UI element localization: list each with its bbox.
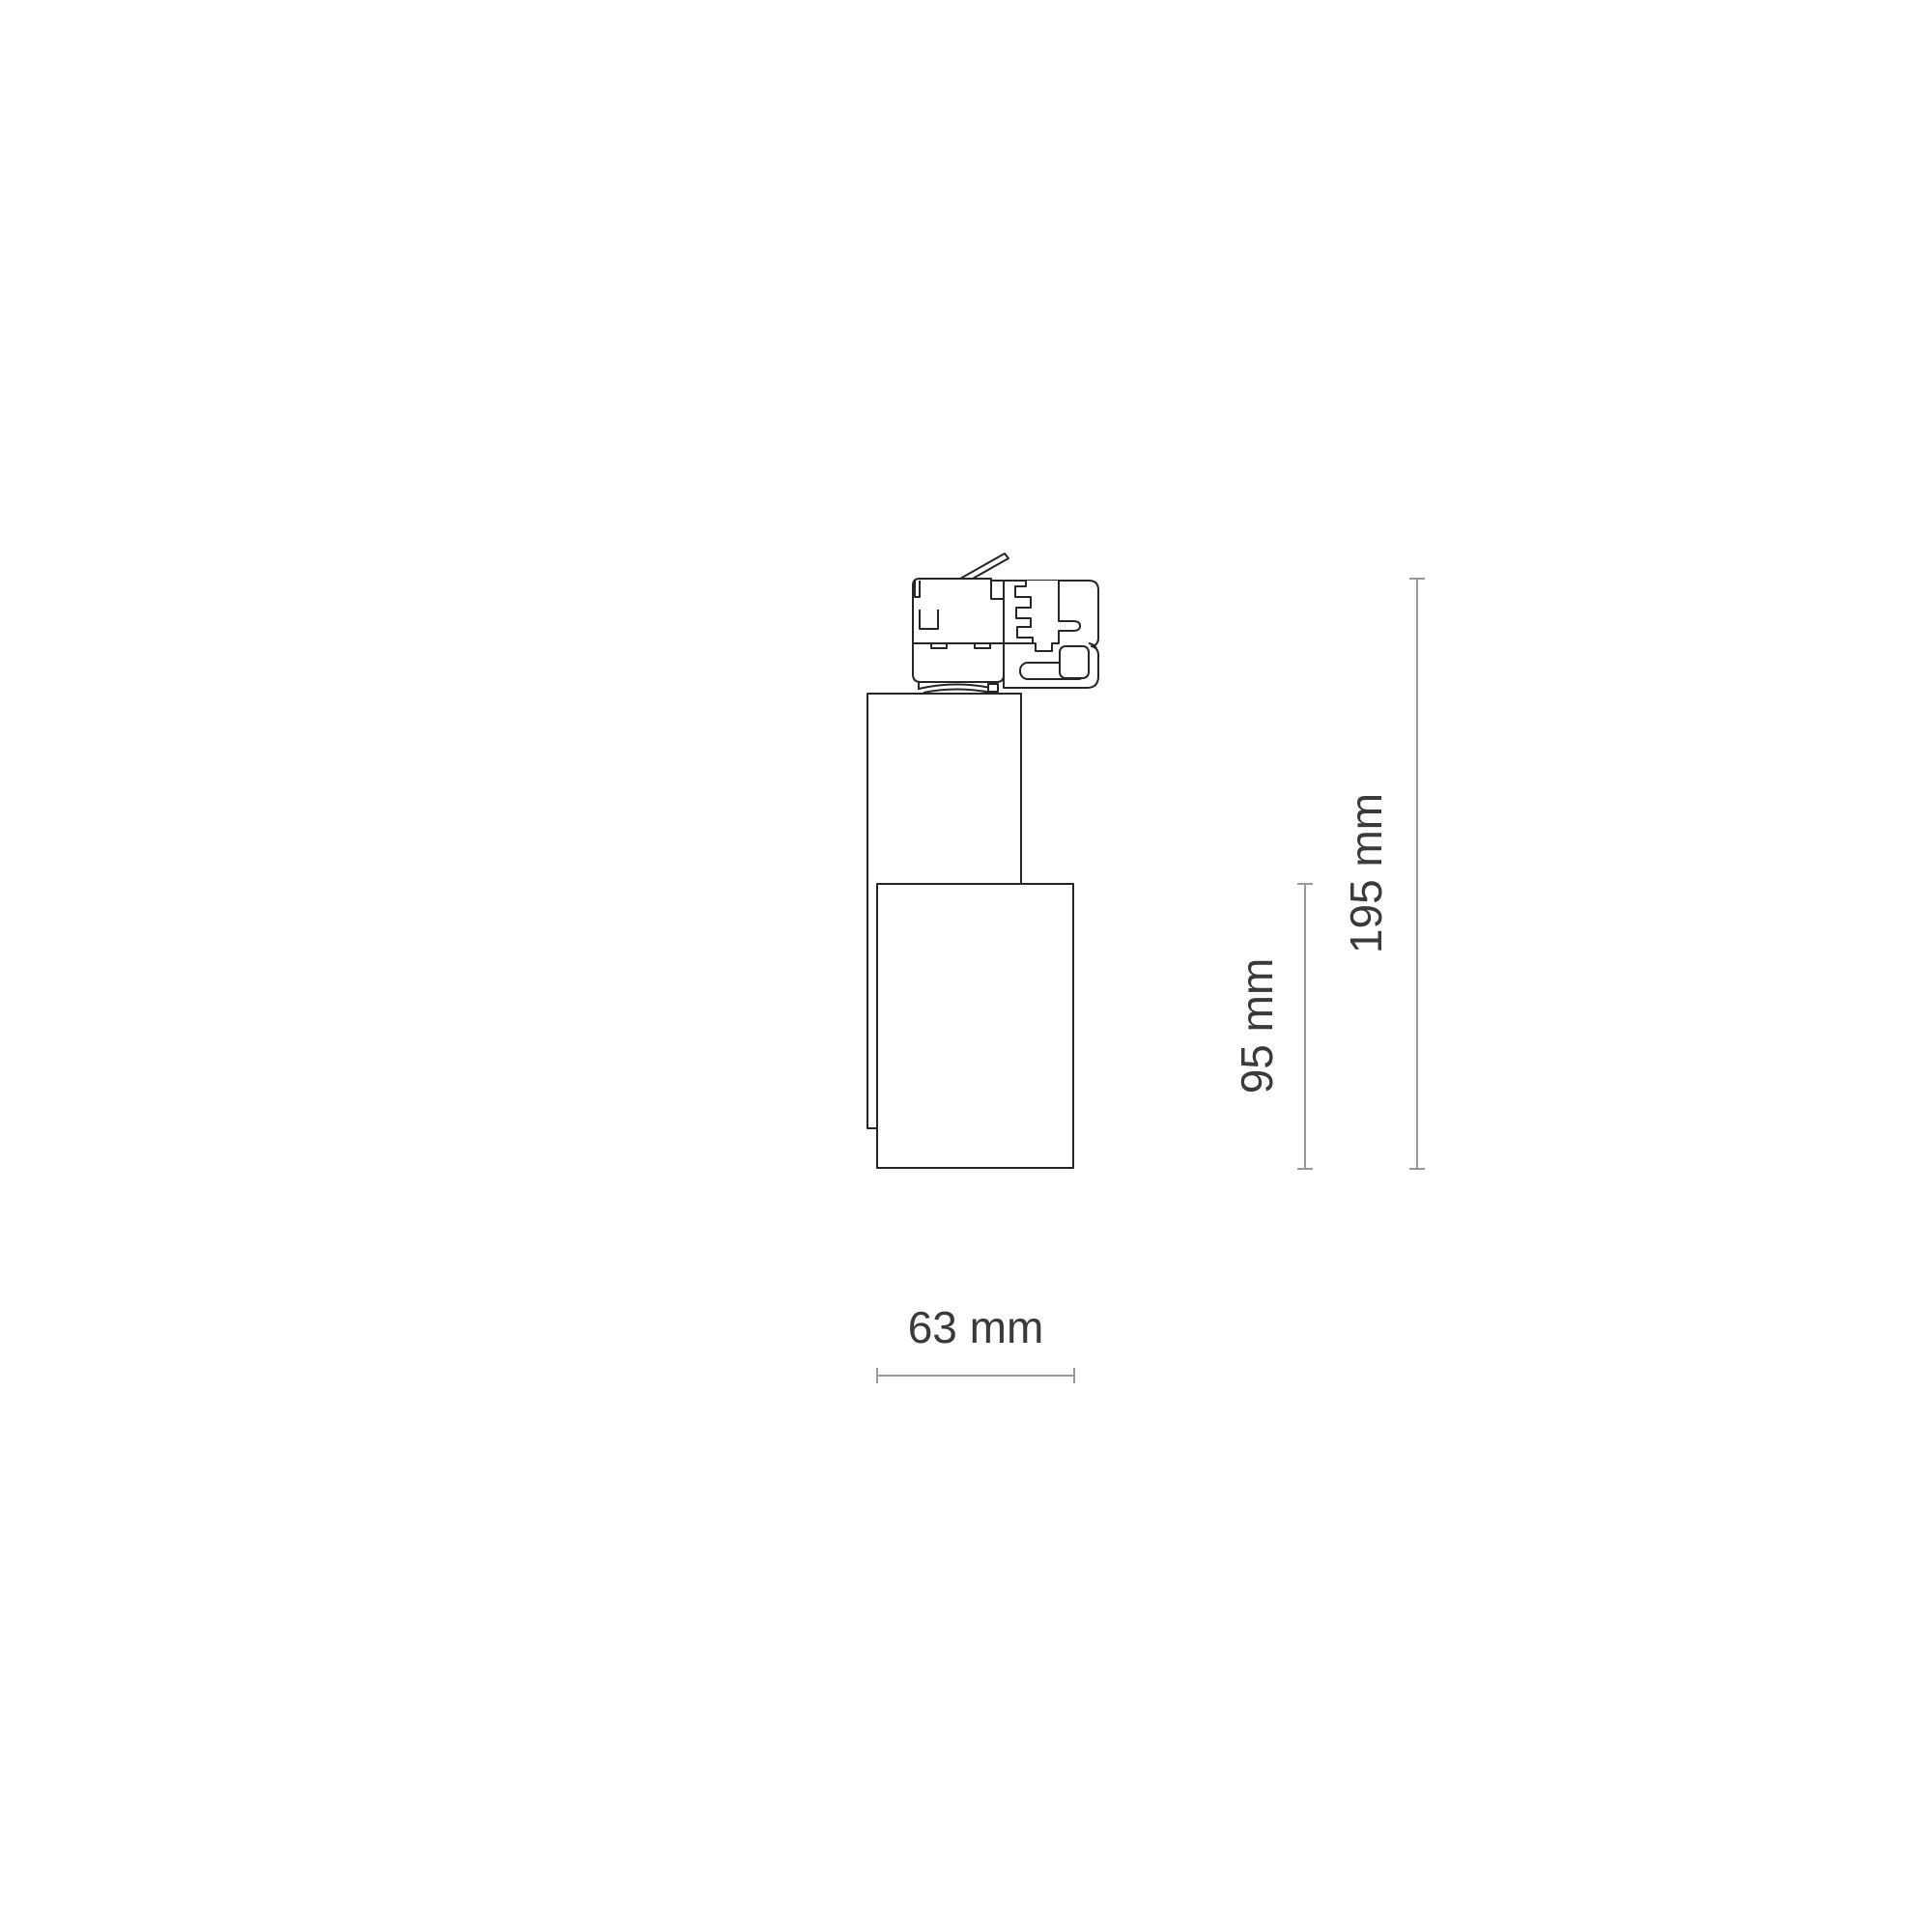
fixture-body-front <box>877 884 1073 1168</box>
dimension-label-63: 63 mm <box>908 1302 1044 1352</box>
adapter-tab-right <box>975 643 990 648</box>
adapter-tab-left <box>931 643 947 648</box>
dimension-label-195: 195 mm <box>1341 793 1391 953</box>
dimension-drawing-canvas: 195 mm 95 mm 63 mm <box>0 0 1932 1932</box>
adapter-housing-left <box>913 579 1004 682</box>
adapter-latch-block <box>1060 646 1089 678</box>
adapter-collar-step <box>988 684 998 692</box>
dimension-label-95: 95 mm <box>1232 958 1282 1094</box>
